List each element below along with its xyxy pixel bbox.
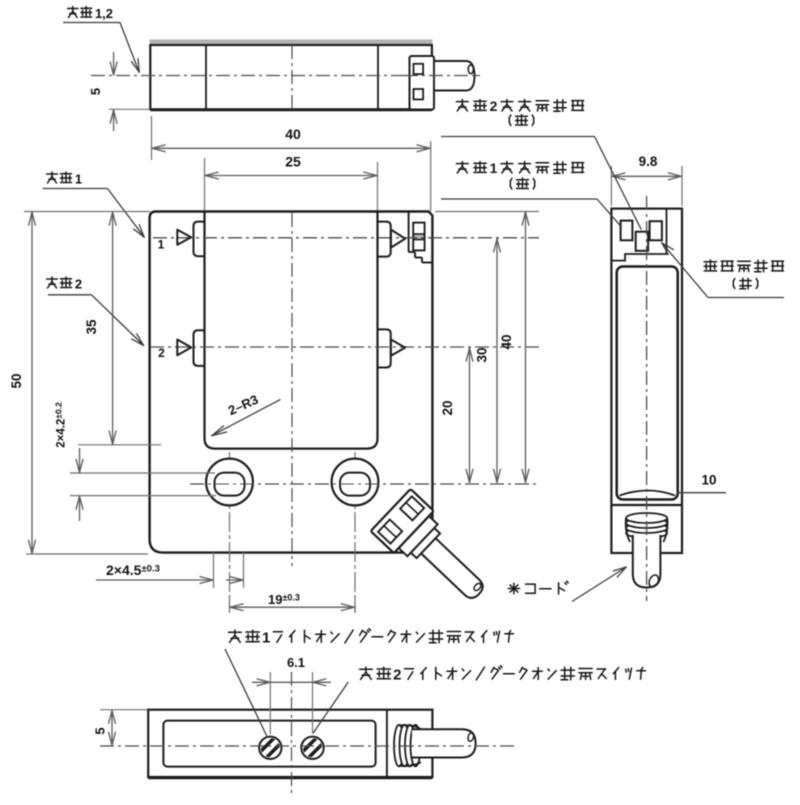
- svg-text:40: 40: [499, 334, 514, 349]
- svg-text:1: 1: [75, 172, 82, 187]
- svg-text:2: 2: [158, 346, 165, 360]
- svg-text:25: 25: [285, 154, 301, 170]
- svg-text:20: 20: [440, 400, 455, 415]
- svg-text:50: 50: [9, 373, 24, 388]
- svg-text:1,2: 1,2: [95, 6, 113, 21]
- svg-text:40: 40: [285, 126, 301, 142]
- svg-text:2: 2: [393, 667, 401, 684]
- svg-text:10: 10: [701, 473, 716, 488]
- svg-text:2: 2: [75, 277, 82, 292]
- svg-text:5: 5: [88, 88, 103, 95]
- svg-text:1: 1: [490, 160, 498, 176]
- svg-text:30: 30: [475, 347, 490, 362]
- svg-text:1: 1: [262, 630, 270, 647]
- svg-text:6.1: 6.1: [287, 655, 305, 670]
- svg-text:35: 35: [84, 319, 99, 335]
- svg-text:9.8: 9.8: [639, 154, 658, 169]
- svg-text:1: 1: [158, 238, 165, 252]
- svg-text:5: 5: [93, 727, 108, 734]
- svg-text:2: 2: [490, 98, 498, 114]
